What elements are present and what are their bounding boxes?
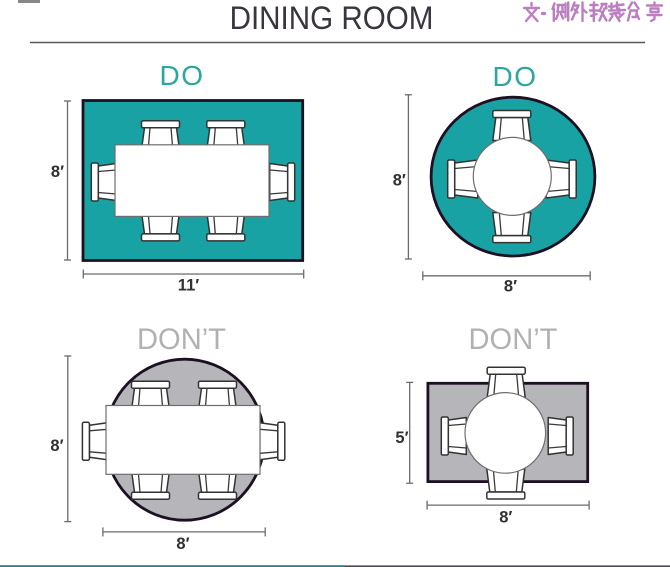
svg-text:8′: 8′: [176, 535, 189, 553]
svg-text:8′: 8′: [393, 172, 406, 190]
svg-text:DO: DO: [160, 60, 205, 91]
svg-text:DON’T: DON’T: [469, 323, 558, 356]
svg-text:8′: 8′: [50, 437, 63, 455]
svg-text:8′: 8′: [499, 509, 512, 527]
svg-text:8′: 8′: [51, 163, 64, 181]
svg-text:8′: 8′: [504, 278, 517, 296]
svg-text:DINING ROOM: DINING ROOM: [230, 0, 434, 36]
svg-text:DON’T: DON’T: [137, 323, 226, 356]
svg-text:DO: DO: [493, 61, 538, 92]
svg-text:11′: 11′: [178, 277, 199, 295]
svg-text:5′: 5′: [395, 429, 408, 447]
